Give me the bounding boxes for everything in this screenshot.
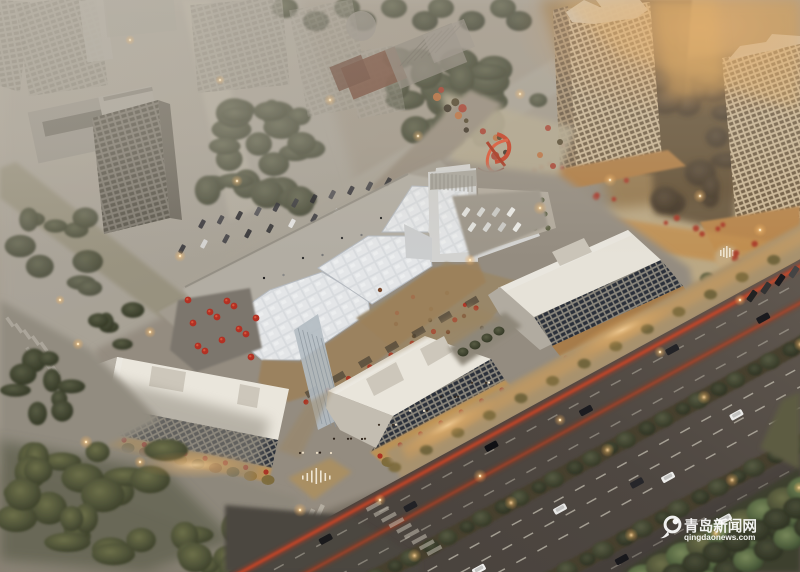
svg-text:qingdaonews.com: qingdaonews.com	[684, 533, 755, 542]
